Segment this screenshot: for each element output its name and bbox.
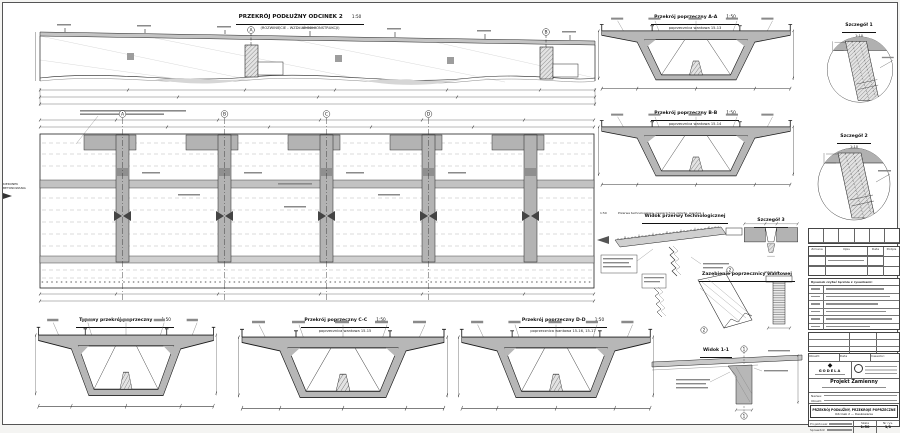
detail-2-drawing: [810, 134, 898, 224]
titleblock-label-investor: Inwestor:: [871, 354, 899, 361]
rev-col-opis: Opis: [826, 247, 868, 256]
partner-logo-block: [852, 362, 899, 378]
related-drawings-rows: [809, 286, 899, 330]
interlock-flag-2a: 2: [729, 268, 732, 273]
longitudinal-section-drawing: A B: [35, 20, 600, 108]
view11-flag-1b: 1: [743, 414, 746, 419]
label-designed: Projektował: [810, 422, 827, 426]
plan-view-drawing: A B C D: [38, 110, 596, 306]
label-name: Nazwa:: [811, 394, 822, 398]
drawing-title-box: PRZEKRÓJ PODŁUŻNY, PRZEKROJE POPRZECZNE …: [809, 404, 899, 421]
label-object2: Obiekt:: [811, 399, 822, 403]
partner-logo-icon: [854, 364, 863, 373]
direction-word-2: BETONOWANIA: [3, 187, 26, 191]
tech-break-scale: 1:50: [600, 212, 607, 216]
rev-col-zmiana: Zmiana: [809, 247, 826, 256]
cross-section-cc-drawing: [238, 320, 448, 416]
titleblock: Obiekt: Data Inwestor: ◆ GODELA Projekt …: [808, 353, 900, 427]
rev-row-1: [809, 257, 899, 267]
revision-table: Zmiana Opis Data Podpis: [808, 246, 900, 276]
name-rows: Nazwa: Obiekt:: [809, 393, 899, 404]
detail-3-drawing: [742, 220, 800, 260]
titleblock-label-date: Data: [840, 354, 871, 361]
interlock-drawing: 2 2: [640, 266, 802, 334]
material-table: [808, 228, 900, 244]
drawing-title-line2: Odcinek 2 — Deskowanie: [811, 412, 897, 416]
cross-section-dd-drawing: [458, 320, 654, 416]
related-drawings-table: Rysunek czytać łącznie z rysunkami:: [808, 278, 900, 330]
company-name: GODELA: [809, 369, 851, 373]
cross-section-aa-drawing: [598, 17, 794, 95]
label-checked: Sprawdził: [810, 428, 825, 432]
partner-text-block: [865, 364, 897, 374]
view11-flag-1a: 1: [743, 347, 746, 352]
direction-arrow-icon: [3, 193, 12, 199]
cross-section-bb-drawing: [598, 113, 794, 191]
plan-flag-b: B: [223, 112, 226, 118]
interlock-flag-2b: 2: [703, 328, 706, 333]
drawing-title-line1: PRZEKRÓJ PODŁUŻNY, PRZEKROJE POPRZECZNE: [811, 408, 897, 412]
plan-flag-d: D: [427, 112, 431, 118]
view11-drawing: 1 1: [648, 346, 806, 424]
rev-row-2: [809, 267, 899, 276]
scale-value: 1:50: [854, 425, 876, 429]
cut-flag-b: B: [544, 30, 547, 36]
sheet-number: 1/1: [877, 425, 899, 429]
cross-section-typ-drawing: [35, 318, 217, 414]
long-section-scale: 1:50: [352, 14, 361, 19]
rev-col-data: Data: [868, 247, 884, 256]
project-name-block: Projekt Zamienny: [809, 380, 899, 393]
tech-break-note: Przerwa technologiczna, powierzchnia zat…: [618, 212, 748, 216]
related-drawings-header: Rysunek czytać łącznie z rysunkami:: [809, 279, 899, 286]
signature-grid: [808, 332, 900, 352]
project-name: Projekt Zamienny: [809, 380, 899, 385]
detail-1-drawing: [822, 24, 898, 106]
titleblock-footer: Projektował Sprawdził Skala 1:50 Nr rys.…: [809, 421, 899, 433]
company-logo-block: ◆ GODELA: [809, 362, 852, 378]
titleblock-label-object: Obiekt:: [809, 354, 840, 361]
plan-flag-c: C: [325, 112, 328, 118]
rev-col-podpis: Podpis: [884, 247, 899, 256]
concreting-direction-label: KIERUNEK BETONOWANIA: [3, 183, 26, 199]
